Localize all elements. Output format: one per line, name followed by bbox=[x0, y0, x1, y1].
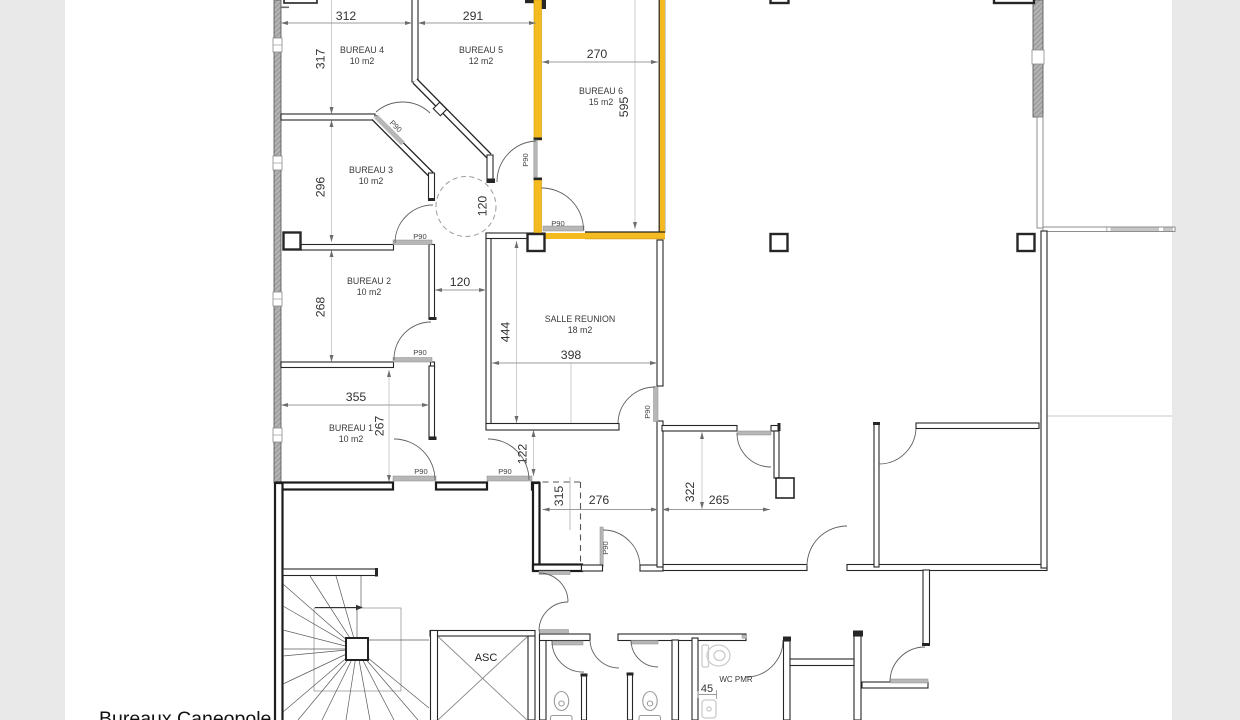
svg-text:BUREAU 3: BUREAU 3 bbox=[349, 165, 393, 175]
svg-text:312: 312 bbox=[336, 9, 357, 23]
svg-text:398: 398 bbox=[561, 348, 582, 362]
svg-text:BUREAU 4: BUREAU 4 bbox=[340, 45, 384, 55]
svg-text:BUREAU 6: BUREAU 6 bbox=[579, 86, 623, 96]
svg-text:15 m2: 15 m2 bbox=[589, 97, 614, 107]
svg-text:122: 122 bbox=[516, 444, 530, 465]
svg-text:322: 322 bbox=[683, 482, 697, 503]
svg-text:P90: P90 bbox=[551, 219, 565, 228]
svg-text:267: 267 bbox=[373, 416, 387, 437]
svg-text:P90: P90 bbox=[413, 232, 427, 241]
svg-text:276: 276 bbox=[589, 493, 610, 507]
svg-text:315: 315 bbox=[552, 486, 566, 507]
svg-text:SALLE REUNION: SALLE REUNION bbox=[545, 314, 615, 324]
svg-text:10 m2: 10 m2 bbox=[357, 287, 382, 297]
svg-text:444: 444 bbox=[499, 322, 513, 343]
svg-text:317: 317 bbox=[314, 49, 328, 70]
svg-text:Bureaux Caneopole: Bureaux Caneopole bbox=[99, 708, 271, 720]
svg-text:BUREAU 2: BUREAU 2 bbox=[347, 276, 391, 286]
svg-text:120: 120 bbox=[476, 196, 490, 217]
svg-text:291: 291 bbox=[463, 9, 484, 23]
svg-text:265: 265 bbox=[709, 493, 730, 507]
svg-text:10 m2: 10 m2 bbox=[339, 434, 364, 444]
svg-text:WC PMR: WC PMR bbox=[719, 675, 753, 684]
svg-text:595: 595 bbox=[617, 97, 631, 118]
svg-text:18 m2: 18 m2 bbox=[568, 325, 593, 335]
svg-text:45: 45 bbox=[701, 683, 713, 695]
svg-text:10 m2: 10 m2 bbox=[359, 176, 384, 186]
svg-text:ASC: ASC bbox=[475, 652, 498, 664]
svg-text:120: 120 bbox=[450, 275, 471, 289]
svg-text:10 m2: 10 m2 bbox=[350, 56, 375, 66]
svg-text:P90: P90 bbox=[643, 405, 652, 419]
svg-text:P90: P90 bbox=[601, 541, 610, 555]
svg-text:355: 355 bbox=[346, 390, 367, 404]
svg-text:P90: P90 bbox=[413, 348, 427, 357]
svg-text:P90: P90 bbox=[414, 467, 428, 476]
svg-text:BUREAU 5: BUREAU 5 bbox=[459, 45, 503, 55]
svg-text:270: 270 bbox=[587, 47, 608, 61]
svg-text:BUREAU 1: BUREAU 1 bbox=[329, 423, 373, 433]
svg-text:P90: P90 bbox=[498, 467, 512, 476]
svg-text:P90: P90 bbox=[521, 153, 530, 167]
svg-text:296: 296 bbox=[314, 177, 328, 198]
svg-text:268: 268 bbox=[314, 297, 328, 318]
svg-text:12 m2: 12 m2 bbox=[469, 56, 494, 66]
